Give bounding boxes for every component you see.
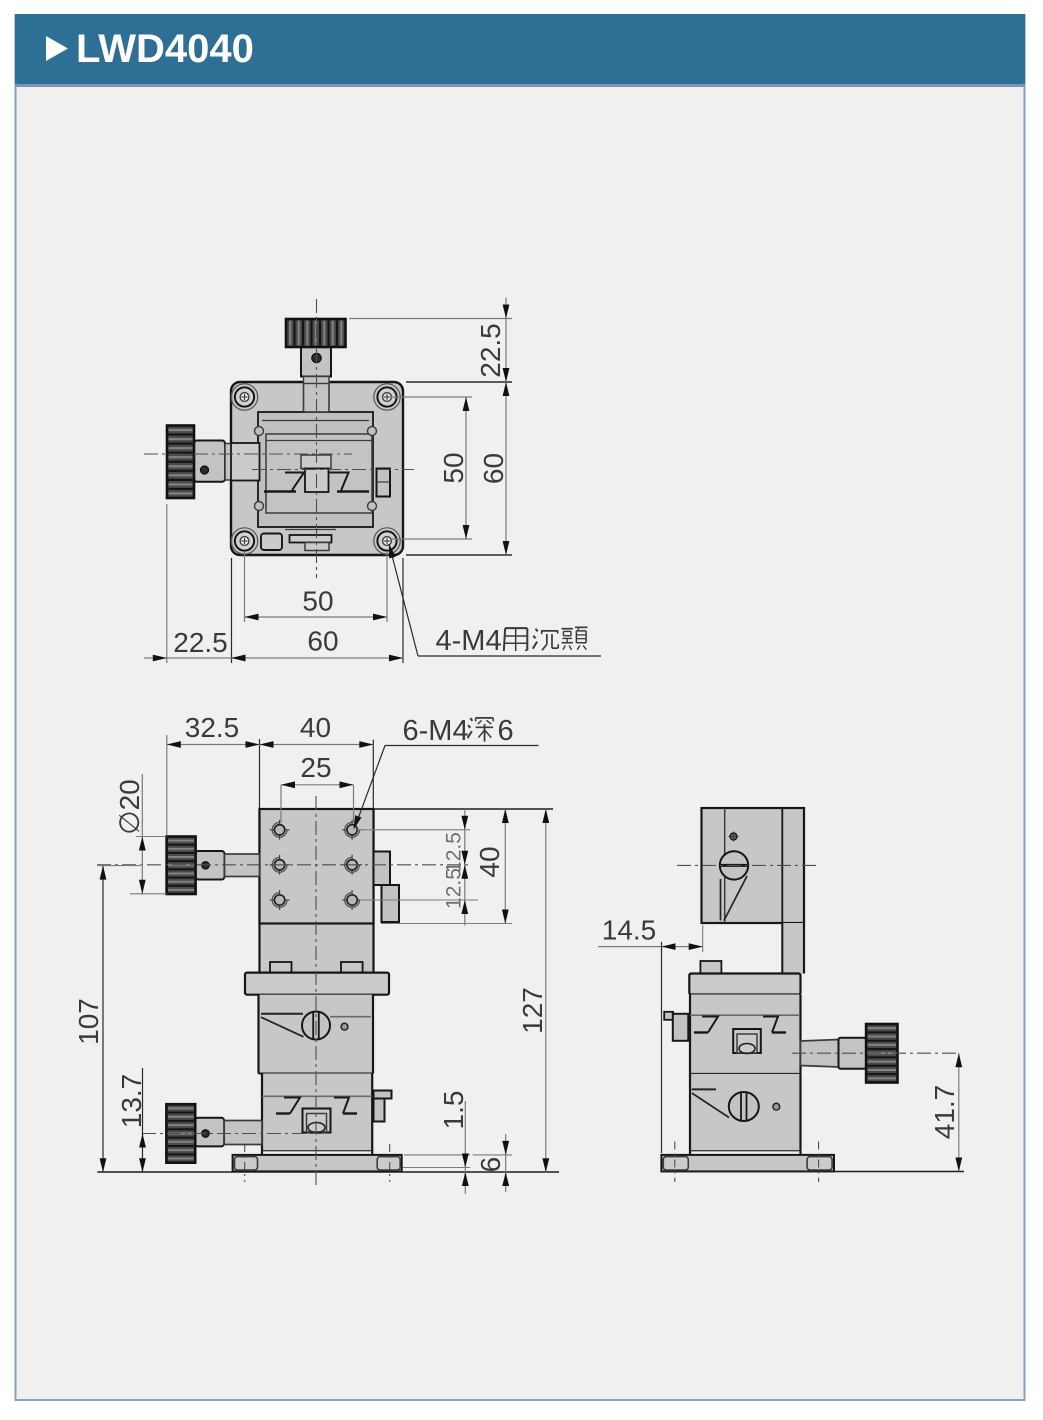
svg-text:22.5: 22.5 (173, 627, 228, 658)
svg-text:127: 127 (517, 987, 548, 1034)
svg-text:60: 60 (478, 453, 509, 484)
svg-text:1.5: 1.5 (438, 1091, 469, 1130)
svg-text:12.5: 12.5 (443, 832, 466, 873)
svg-text:41.7: 41.7 (929, 1085, 960, 1140)
svg-text:107: 107 (73, 998, 104, 1045)
svg-text:14.5: 14.5 (602, 915, 657, 946)
svg-text:50: 50 (302, 586, 333, 617)
svg-text:13.7: 13.7 (116, 1074, 147, 1129)
svg-text:4-M4: 4-M4 (436, 625, 502, 657)
svg-text:22.5: 22.5 (475, 323, 506, 378)
svg-text:25: 25 (300, 752, 331, 783)
svg-text:6-M4: 6-M4 (403, 715, 469, 747)
svg-text:40: 40 (474, 846, 505, 877)
svg-text:LWD4040: LWD4040 (76, 27, 254, 71)
svg-text:6: 6 (498, 715, 514, 747)
svg-text:32.5: 32.5 (185, 712, 240, 743)
svg-text:60: 60 (307, 626, 338, 657)
svg-text:6: 6 (475, 1157, 506, 1173)
svg-text:∅20: ∅20 (114, 779, 145, 835)
svg-text:50: 50 (438, 452, 469, 483)
svg-text:12.5: 12.5 (443, 868, 466, 909)
svg-text:40: 40 (300, 712, 331, 743)
